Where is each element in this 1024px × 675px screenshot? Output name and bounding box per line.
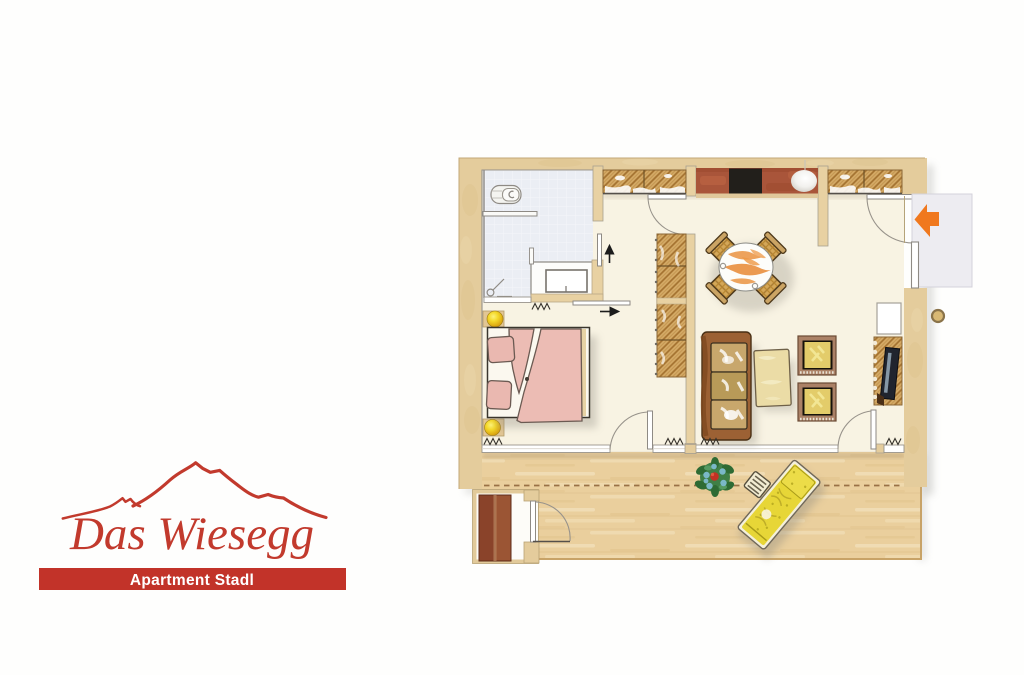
- svg-text:Das Wiesegg: Das Wiesegg: [69, 508, 314, 560]
- svg-text:Apartment Stadl: Apartment Stadl: [130, 572, 254, 589]
